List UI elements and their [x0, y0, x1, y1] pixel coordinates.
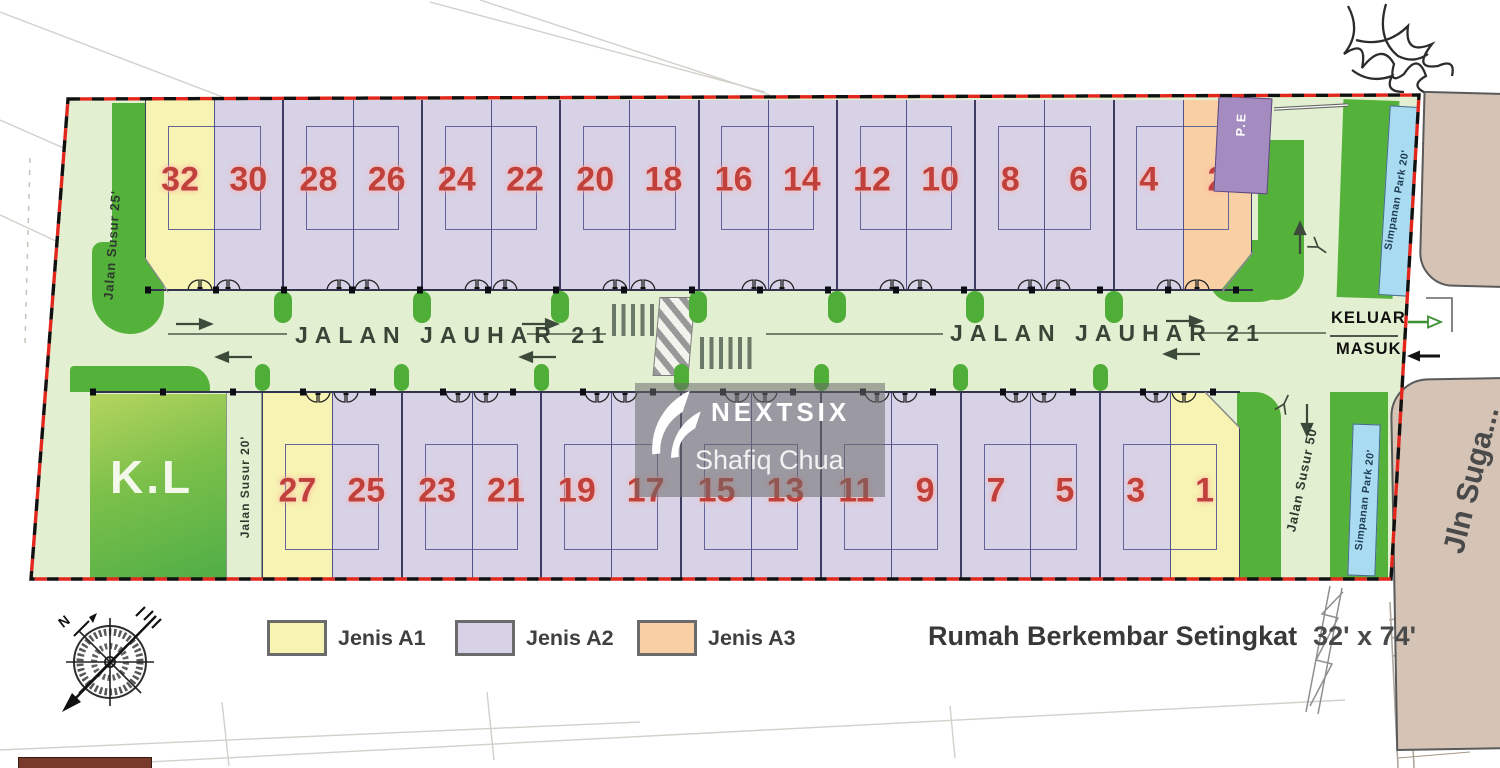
watermark-agent: Shafiq Chua [695, 445, 844, 476]
road-name-susur20: Jalan Susur 20' [238, 436, 252, 539]
plan-title-text: Rumah Berkembar Setingkat [928, 621, 1297, 651]
road-name-jauhar-left: JALAN JAUHAR 21 [295, 322, 611, 349]
plan-title: Rumah Berkembar Setingkat32' x 74' [928, 621, 1416, 652]
plan-title-size: 32' x 74' [1313, 621, 1416, 651]
north-label: N [55, 612, 73, 631]
maroon-sketch-bar [18, 757, 152, 768]
road-name-jauhar-right: JALAN JAUHAR 21 [950, 320, 1266, 347]
watermark: NEXTSIX Shafiq Chua [635, 383, 885, 497]
legend-swatch-a2 [455, 620, 515, 656]
site-plan-canvas: K.L 3230282624222018161412108642 2725232… [0, 0, 1500, 768]
legend-label-a1: Jenis A1 [338, 626, 426, 651]
exit-label: KELUAR [1331, 309, 1406, 328]
legend-item-a2: Jenis A2 [455, 620, 614, 656]
watermark-brand: NEXTSIX [711, 397, 850, 428]
legend-label-a2: Jenis A2 [526, 626, 614, 651]
legend-label-a3: Jenis A3 [708, 626, 796, 651]
entry-label: MASUK [1336, 340, 1402, 359]
legend-swatch-a3 [637, 620, 697, 656]
legend-item-a3: Jenis A3 [637, 620, 796, 656]
legend-swatch-a1 [267, 620, 327, 656]
legend-item-a1: Jenis A1 [267, 620, 426, 656]
compass-rose-icon: N [44, 590, 184, 740]
